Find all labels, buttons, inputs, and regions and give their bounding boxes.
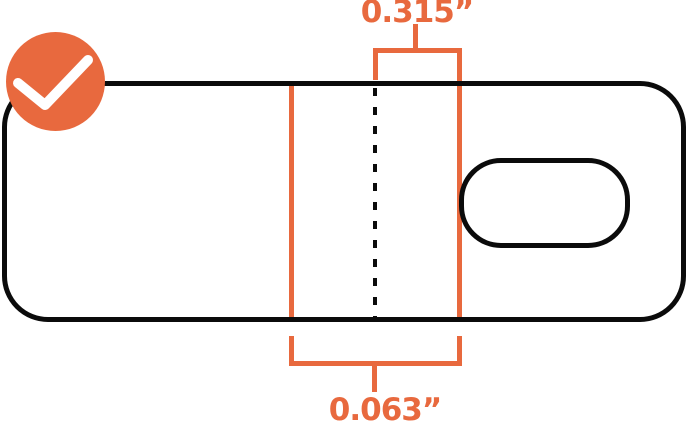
- check-badge: [6, 32, 105, 131]
- dimension-label-top: 0.315”: [342, 0, 492, 28]
- bottom-bracket-stem: [372, 361, 377, 392]
- check-icon: [6, 32, 105, 131]
- diagram-canvas: 0.315” 0.063”: [0, 0, 690, 425]
- dimension-label-bottom: 0.063”: [310, 395, 460, 425]
- tag-slot-outline: [459, 158, 630, 248]
- bottom-bracket-left-tick: [289, 336, 294, 366]
- bottom-bracket-right-tick: [457, 336, 462, 366]
- top-bracket-left-tick: [373, 48, 378, 80]
